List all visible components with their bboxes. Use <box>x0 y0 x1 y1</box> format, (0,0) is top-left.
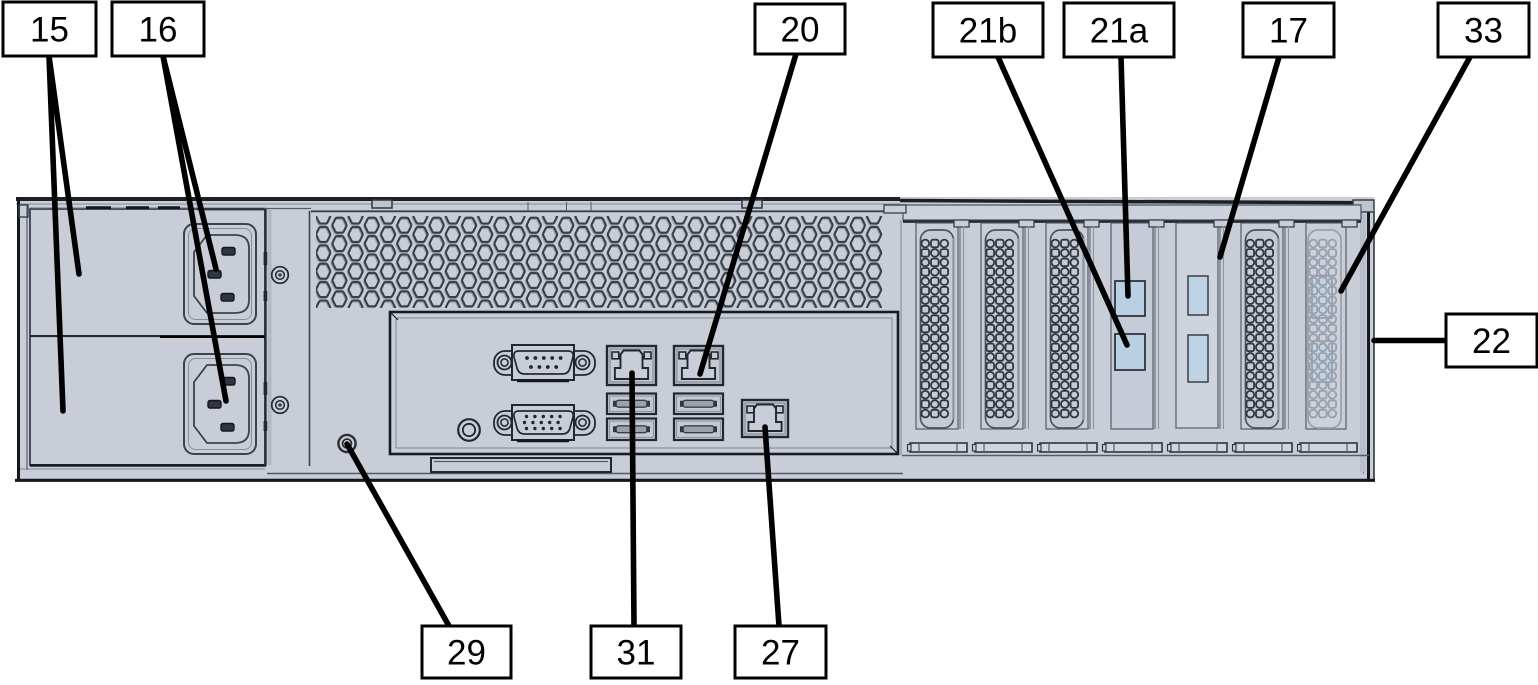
svg-text:33: 33 <box>1464 12 1503 51</box>
svg-text:27: 27 <box>761 634 800 673</box>
svg-text:16: 16 <box>139 11 178 50</box>
svg-text:17: 17 <box>1269 12 1308 51</box>
svg-text:21a: 21a <box>1090 12 1149 51</box>
svg-text:31: 31 <box>617 634 656 673</box>
svg-text:21b: 21b <box>959 12 1017 51</box>
svg-text:29: 29 <box>447 634 486 673</box>
svg-text:15: 15 <box>30 11 69 50</box>
svg-text:22: 22 <box>1472 322 1511 361</box>
svg-text:20: 20 <box>781 11 820 50</box>
